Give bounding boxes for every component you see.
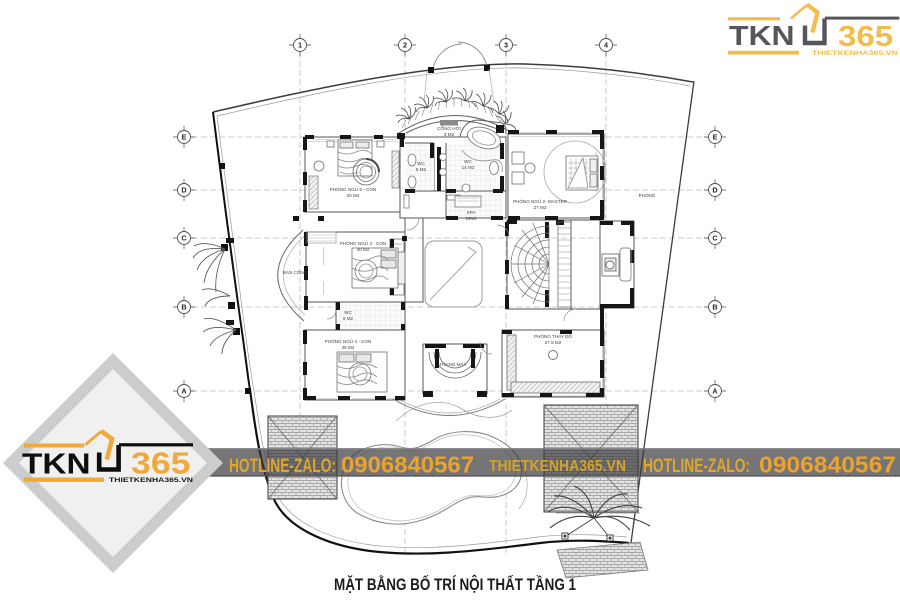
- svg-text:0906840567: 0906840567: [759, 452, 896, 478]
- svg-text:PHÒNG THAY ĐỒ: PHÒNG THAY ĐỒ: [534, 333, 572, 339]
- svg-text:B: B: [712, 303, 717, 312]
- svg-text:PHÒNG NGỦ 4 - CON: PHÒNG NGỦ 4 - CON: [325, 338, 371, 344]
- svg-text:C: C: [712, 234, 717, 243]
- svg-text:C: C: [181, 234, 186, 243]
- svg-text:D: D: [712, 186, 717, 195]
- svg-text:14 M2: 14 M2: [462, 165, 475, 170]
- svg-text:PHÒNG NGỦ 2- MASTER: PHÒNG NGỦ 2- MASTER: [513, 198, 568, 204]
- svg-text:BAN CÔNG: BAN CÔNG: [283, 269, 308, 275]
- svg-text:E: E: [182, 133, 187, 142]
- svg-text:27 M2: 27 M2: [534, 205, 547, 210]
- svg-text:3 M2: 3 M2: [444, 132, 455, 137]
- svg-text:25 M2: 25 M2: [342, 345, 355, 350]
- svg-text:PHÒNG: PHÒNG: [639, 192, 656, 198]
- svg-text:SPA: SPA: [467, 210, 477, 215]
- svg-text:THANG MÁY: THANG MÁY: [439, 361, 466, 367]
- svg-text:3: 3: [504, 41, 508, 50]
- svg-text:MẶT BẰNG BỐ TRÍ NỘI THẤT TẦNG: MẶT BẰNG BỐ TRÍ NỘI THẤT TẦNG 1: [334, 574, 576, 594]
- svg-text:B: B: [181, 303, 186, 312]
- svg-text:WC: WC: [464, 159, 472, 164]
- svg-text:D: D: [181, 186, 186, 195]
- svg-text:WC: WC: [344, 310, 352, 315]
- svg-text:1: 1: [298, 41, 302, 50]
- svg-text:PHÒNG NGỦ 3 - CON: PHÒNG NGỦ 3 - CON: [340, 240, 386, 246]
- svg-text:27.5 M2: 27.5 M2: [545, 340, 562, 345]
- svg-text:365: 365: [838, 20, 893, 53]
- svg-text:WC: WC: [417, 161, 425, 166]
- svg-text:6 M2: 6 M2: [343, 316, 354, 321]
- svg-text:30 M2: 30 M2: [357, 247, 370, 252]
- svg-text:HOTLINE-ZALO:: HOTLINE-ZALO:: [229, 456, 336, 477]
- svg-text:4: 4: [604, 41, 608, 50]
- svg-text:2: 2: [403, 41, 407, 50]
- svg-text:TKN: TKN: [729, 21, 795, 52]
- svg-text:5 M2: 5 M2: [416, 167, 427, 172]
- svg-text:CỔNG HỞI: CỔNG HỞI: [437, 125, 461, 131]
- svg-text:PHÒNG NGỦ 5 - CON: PHÒNG NGỦ 5 - CON: [330, 186, 376, 192]
- svg-text:0906840567: 0906840567: [341, 452, 474, 478]
- svg-text:A: A: [181, 387, 186, 396]
- svg-text:HOTLINE-ZALO:: HOTLINE-ZALO:: [643, 456, 750, 477]
- svg-text:E: E: [713, 133, 718, 142]
- svg-text:THIETKENHA365.VN: THIETKENHA365.VN: [109, 477, 194, 484]
- svg-text:A: A: [712, 387, 717, 396]
- svg-text:TKN: TKN: [22, 448, 91, 480]
- svg-text:THIETKENHA365.VN: THIETKENHA365.VN: [489, 458, 626, 475]
- svg-text:10M2: 10M2: [465, 216, 477, 221]
- svg-text:THIETKENHA365.VN: THIETKENHA365.VN: [812, 51, 898, 57]
- svg-text:20 M2: 20 M2: [347, 193, 360, 198]
- svg-text:365: 365: [131, 447, 190, 481]
